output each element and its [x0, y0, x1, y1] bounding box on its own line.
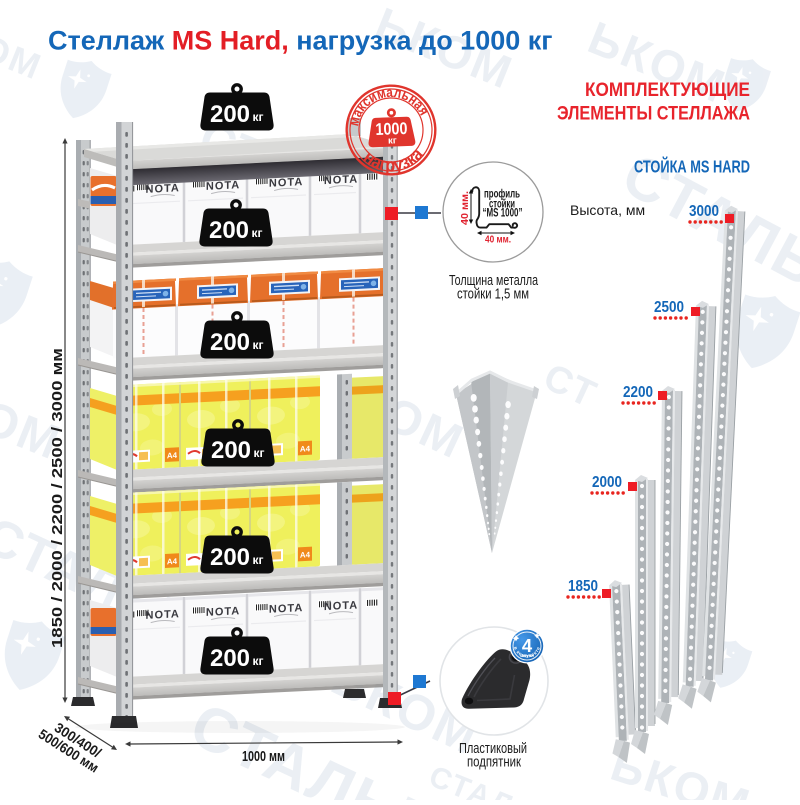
svg-text:NOTA: NOTA — [206, 179, 240, 193]
svg-text:NOTA: NOTA — [269, 176, 303, 190]
svg-text:A4: A4 — [300, 444, 311, 454]
svg-text:“MS 1000”: “MS 1000” — [483, 208, 523, 220]
svg-text:1850: 1850 — [568, 578, 598, 595]
svg-text:A4: A4 — [167, 557, 178, 567]
svg-text:40 мм.: 40 мм. — [459, 191, 471, 225]
svg-text:2500: 2500 — [654, 299, 684, 316]
svg-text:NOTA: NOTA — [324, 599, 358, 613]
svg-text:NOTA: NOTA — [146, 182, 180, 196]
svg-text:2200: 2200 — [623, 384, 653, 401]
svg-text:подпятник: подпятник — [467, 754, 521, 771]
svg-text:NOTA: NOTA — [206, 605, 240, 619]
svg-text:КОМПЛЕКТУЮЩИЕ: КОМПЛЕКТУЮЩИЕ — [585, 80, 750, 101]
svg-text:NOTA: NOTA — [324, 173, 358, 187]
svg-text:1850 / 2000 / 2200 / 2500 / 30: 1850 / 2000 / 2200 / 2500 / 3000 мм — [49, 348, 66, 648]
svg-text:Стеллаж MS Hard, нагрузка до 1: Стеллаж MS Hard, нагрузка до 1000 кг — [48, 26, 553, 56]
svg-text:40 мм.: 40 мм. — [485, 234, 511, 246]
svg-text:NOTA: NOTA — [146, 608, 180, 622]
svg-text:NOTA: NOTA — [269, 602, 303, 616]
svg-text:A4: A4 — [167, 451, 178, 461]
svg-text:СТОЙКА MS HARD: СТОЙКА MS HARD — [634, 156, 750, 177]
svg-text:кг: кг — [388, 135, 397, 146]
svg-text:стойки 1,5 мм: стойки 1,5 мм — [457, 286, 529, 303]
svg-text:3000: 3000 — [689, 203, 719, 220]
svg-text:A4: A4 — [300, 550, 311, 560]
svg-text:ЭЛЕМЕНТЫ СТЕЛЛАЖА: ЭЛЕМЕНТЫ СТЕЛЛАЖА — [557, 104, 750, 125]
svg-text:1000 мм: 1000 мм — [242, 748, 285, 765]
svg-text:Высота, мм: Высота, мм — [570, 202, 645, 218]
svg-text:2000: 2000 — [592, 474, 622, 491]
